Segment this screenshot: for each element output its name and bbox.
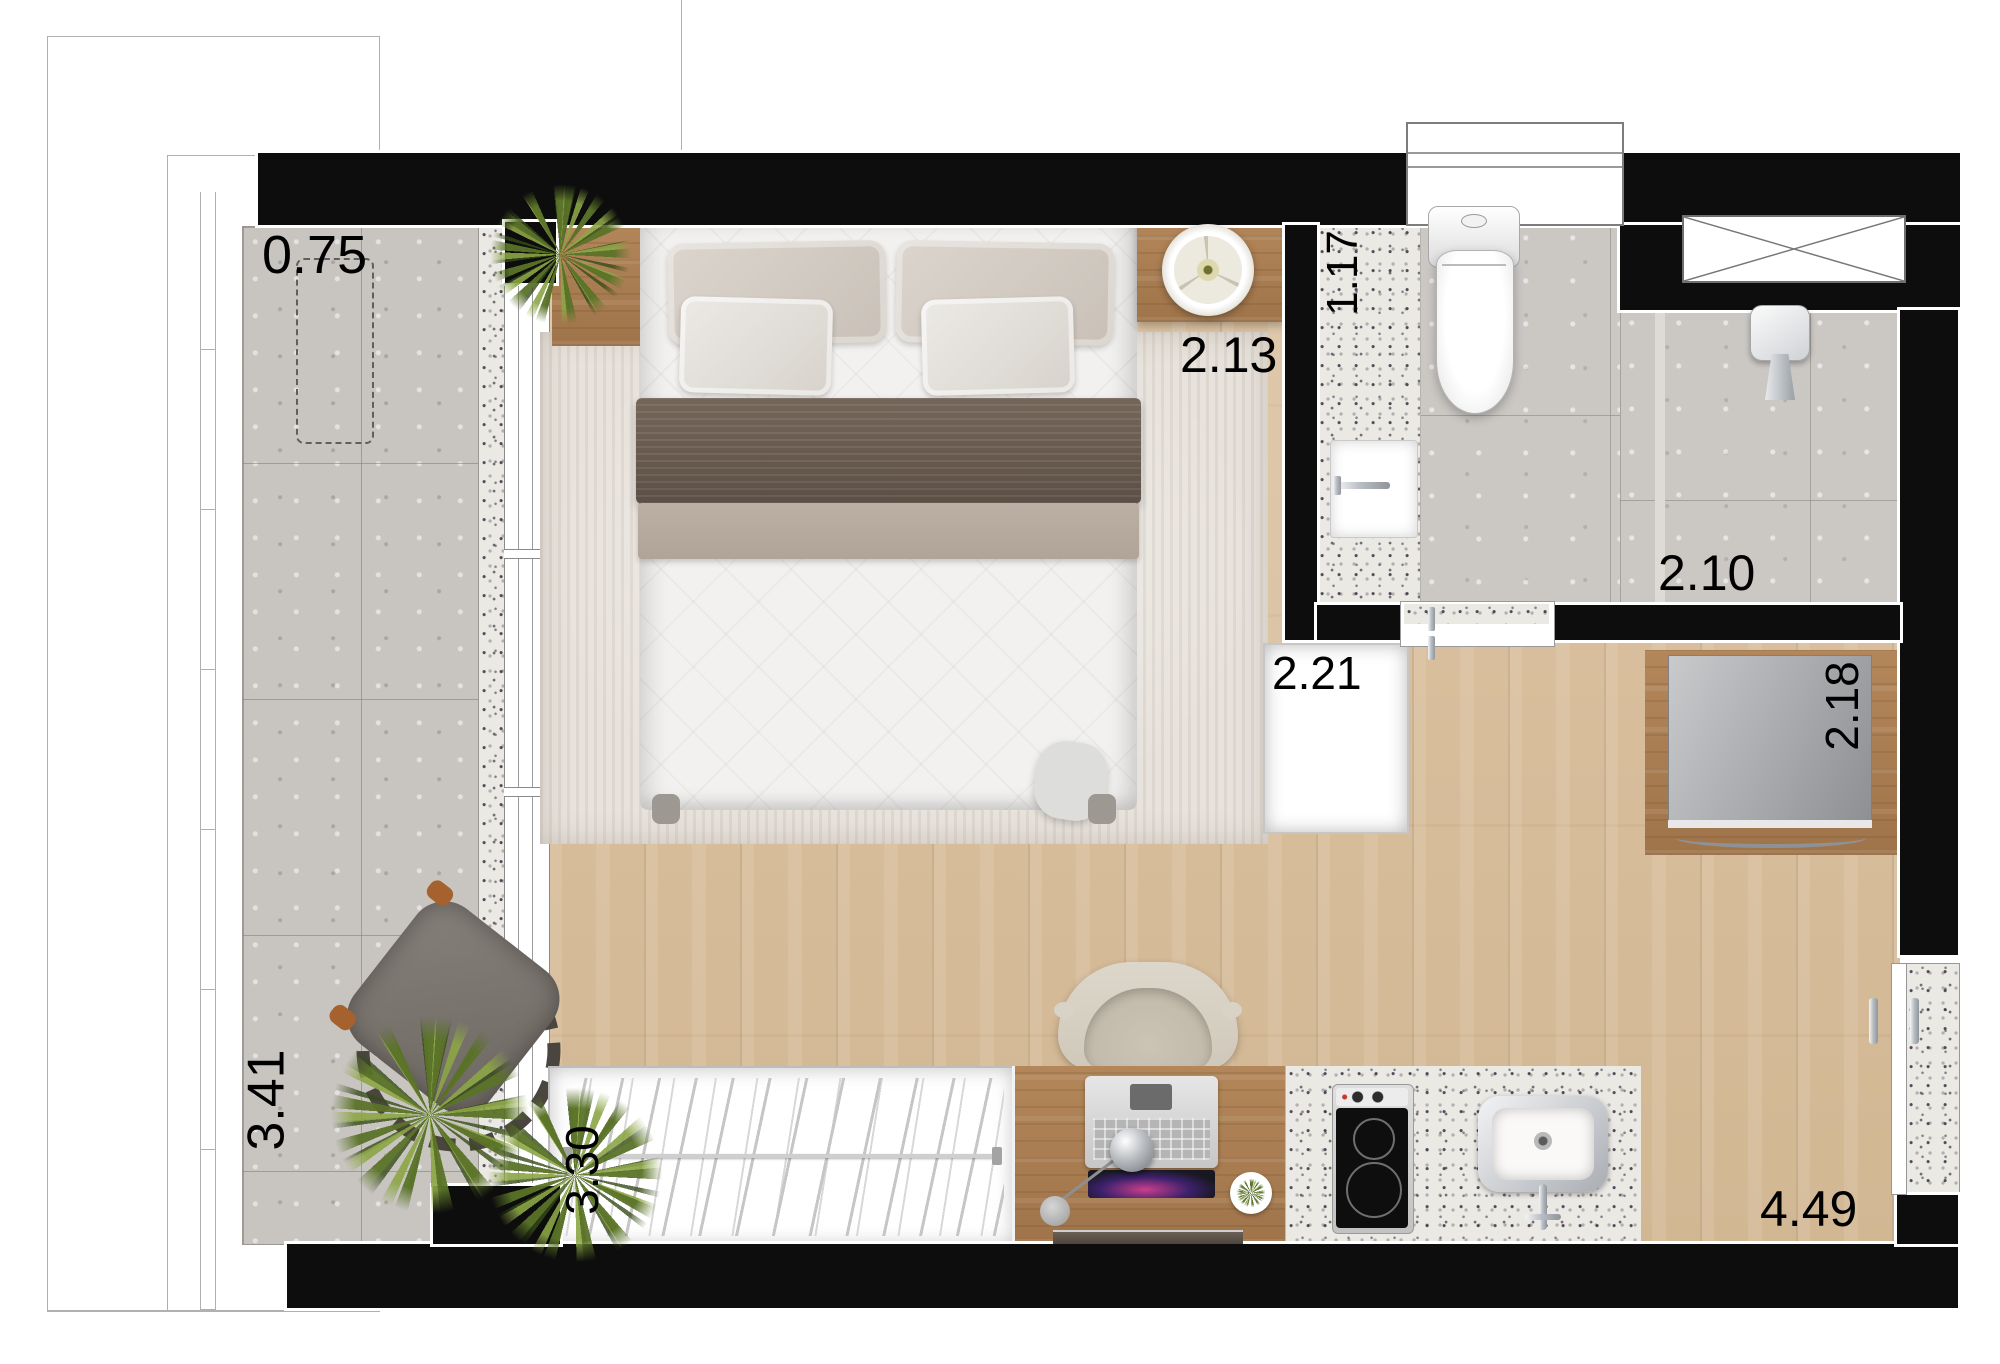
bathroom-door-sill	[1404, 604, 1549, 624]
context-line-vertical	[167, 155, 168, 1310]
entry-door-handle	[1910, 998, 1919, 1044]
dim-balcony-depth: 0.75	[262, 228, 367, 282]
candle	[1197, 259, 1219, 281]
laptop-hinge	[1130, 1084, 1172, 1110]
chair-armrest	[1054, 1002, 1074, 1018]
door-handle	[1428, 636, 1435, 660]
shower-head	[1750, 305, 1810, 361]
context-line-top	[681, 0, 682, 153]
duct-shaft	[1682, 215, 1906, 283]
burner-ring	[1353, 1118, 1395, 1160]
dim-kitchen-length: 4.49	[1760, 1184, 1857, 1234]
context-line-horizontal	[167, 155, 258, 156]
bath-faucet-handle	[1333, 476, 1341, 495]
ac-unit-dashed-outline	[296, 258, 374, 444]
dim-bath-length: 2.10	[1658, 548, 1755, 598]
laptop-screen	[1088, 1170, 1215, 1198]
rod-end-cap	[992, 1147, 1002, 1165]
sink-drain	[1534, 1132, 1552, 1150]
tv-base-strip	[1668, 820, 1872, 828]
toilet-bowl	[1436, 250, 1514, 414]
floor-plan: 0.75 3.41 2.13 1.17 2.10 2.21 2.18 3.30 …	[0, 0, 2000, 1364]
dim-tv-width: 2.18	[1819, 661, 1865, 751]
dim-niche-width: 2.21	[1272, 650, 1362, 696]
wall-bath-bottom-right	[1553, 605, 1900, 640]
entry-door-leaf	[1891, 963, 1907, 1195]
double-bed	[640, 222, 1137, 810]
desk-lamp-base	[1040, 1196, 1070, 1226]
bed-foot	[652, 794, 680, 824]
desk-lamp-sphere	[1110, 1128, 1154, 1172]
pillow-front	[921, 296, 1075, 396]
desk-chair	[1058, 962, 1238, 1070]
desk-drawer-groove	[1053, 1230, 1243, 1244]
tv-soundbar	[1676, 828, 1866, 848]
shelf-plant	[468, 162, 653, 347]
dim-closet-length: 3.30	[559, 1125, 605, 1215]
dim-bath-width: 1.17	[1321, 230, 1365, 316]
dim-bed-width: 2.13	[1180, 330, 1277, 380]
context-railing	[200, 192, 216, 1310]
burner-ring	[1346, 1162, 1402, 1218]
throw-blanket	[636, 398, 1141, 504]
wall-right-below-door	[1897, 1195, 1958, 1244]
cooktop-control-panel	[1336, 1088, 1408, 1106]
desk-plant	[1232, 1174, 1270, 1212]
bath-sink	[1330, 440, 1418, 538]
kitchen-faucet	[1539, 1184, 1547, 1230]
dim-balcony-length: 3.41	[241, 1049, 293, 1150]
chair-armrest	[1222, 1002, 1242, 1018]
sheet-band	[638, 503, 1139, 559]
context-line-bottom	[47, 1310, 433, 1311]
wall-right	[1900, 310, 1958, 955]
door-handle	[1428, 607, 1435, 631]
toilet-flush-button	[1461, 214, 1487, 228]
toilet-seat-line	[1442, 264, 1506, 266]
bath-faucet	[1336, 482, 1390, 489]
wall-bed-bath-divider	[1285, 225, 1317, 640]
wall-bath-bottom-left	[1317, 605, 1400, 640]
kitchen-faucet-handle	[1525, 1214, 1561, 1220]
entry-door-handle	[1869, 998, 1878, 1044]
pillow-front	[679, 296, 833, 396]
bed-foot	[1088, 794, 1116, 824]
